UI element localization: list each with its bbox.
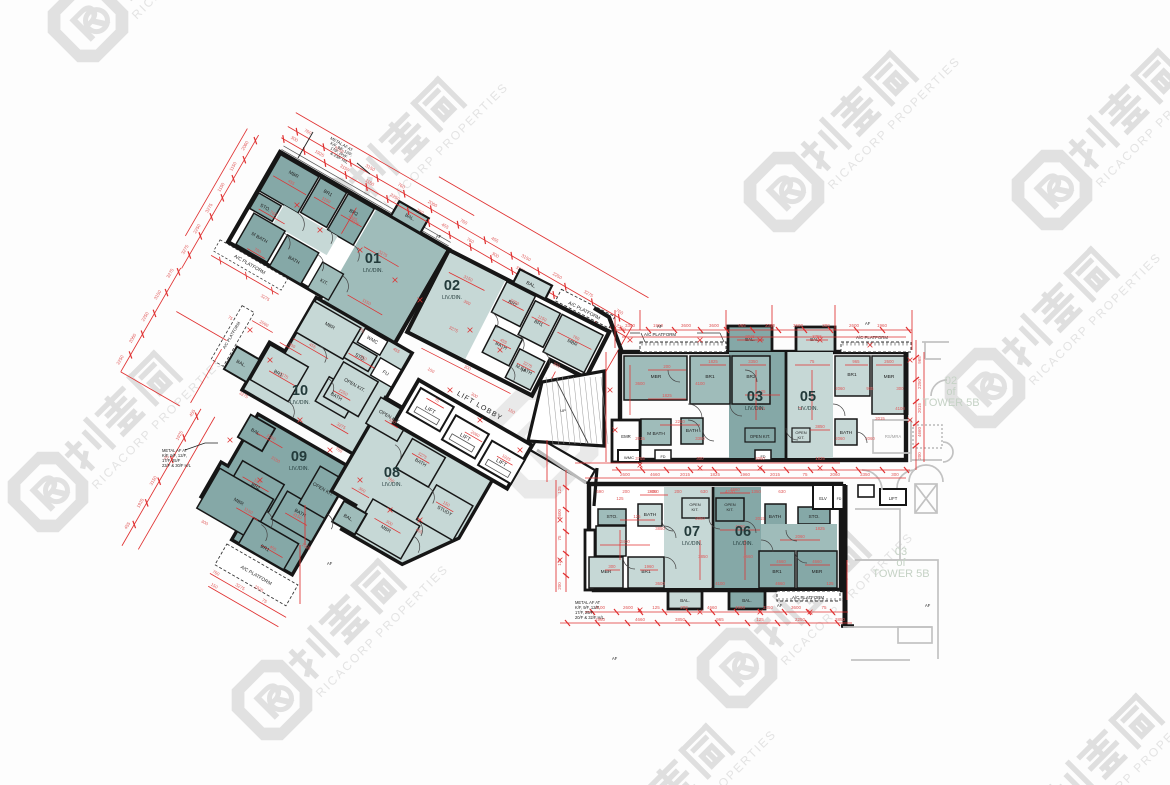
svg-text:BATH: BATH [686, 428, 699, 434]
svg-text:02: 02 [444, 278, 460, 294]
svg-text:200: 200 [557, 582, 562, 590]
svg-text:965: 965 [917, 356, 922, 364]
svg-text:1960: 1960 [877, 323, 888, 328]
svg-text:4660: 4660 [917, 426, 922, 437]
svg-text:2015: 2015 [770, 472, 781, 477]
svg-text:FD: FD [837, 497, 842, 501]
svg-text:3600: 3600 [791, 605, 802, 610]
svg-text:2600: 2600 [620, 472, 631, 477]
svg-text:3600: 3600 [635, 381, 645, 386]
svg-text:TOWER 5B: TOWER 5B [922, 397, 979, 409]
svg-text:75: 75 [557, 535, 562, 541]
svg-text:LIV./DIN.: LIV./DIN. [382, 482, 402, 488]
svg-text:07: 07 [684, 524, 700, 540]
svg-text:AF: AF [777, 603, 783, 608]
svg-text:965: 965 [716, 617, 724, 622]
svg-text:3600: 3600 [709, 323, 720, 328]
svg-text:AF: AF [925, 603, 931, 608]
svg-text:630: 630 [778, 489, 786, 494]
svg-text:2015: 2015 [635, 436, 645, 441]
svg-text:200: 200 [680, 605, 688, 610]
svg-text:2060: 2060 [695, 516, 705, 521]
svg-text:BAL.: BAL. [742, 598, 752, 603]
svg-text:200: 200 [917, 452, 922, 460]
svg-text:3350: 3350 [763, 605, 774, 610]
svg-text:630: 630 [700, 489, 708, 494]
svg-text:23/F & 30/F H/L: 23/F & 30/F H/L [162, 463, 192, 468]
svg-text:STO.: STO. [808, 514, 819, 520]
svg-text:A/C PLATFORM: A/C PLATFORM [644, 332, 676, 337]
svg-text:3850: 3850 [698, 554, 708, 559]
svg-text:75: 75 [821, 605, 827, 610]
svg-text:125: 125 [557, 486, 562, 494]
svg-text:3755: 3755 [635, 456, 645, 461]
svg-text:LIV./DIN.: LIV./DIN. [290, 400, 310, 406]
svg-text:1350: 1350 [751, 489, 761, 494]
svg-text:2015: 2015 [875, 416, 885, 421]
svg-text:KIT.: KIT. [798, 435, 805, 440]
svg-text:KIT.: KIT. [727, 507, 734, 512]
svg-text:BR1: BR1 [847, 372, 857, 378]
svg-text:965: 965 [866, 386, 874, 391]
svg-text:LIFT: LIFT [889, 496, 898, 501]
svg-text:125: 125 [756, 617, 764, 622]
svg-text:AF: AF [521, 368, 527, 373]
svg-text:2015: 2015 [917, 402, 922, 413]
svg-text:BATH: BATH [644, 512, 657, 518]
svg-text:LIV./DIN.: LIV./DIN. [733, 541, 753, 547]
svg-text:MBR: MBR [884, 374, 895, 380]
svg-text:4100: 4100 [695, 381, 705, 386]
svg-text:LIV./DIN.: LIV./DIN. [798, 406, 818, 412]
svg-text:RS/MRA: RS/MRA [885, 434, 901, 439]
svg-text:4230: 4230 [725, 489, 735, 494]
svg-text:3850: 3850 [835, 617, 846, 622]
svg-text:2060: 2060 [835, 386, 845, 391]
svg-text:2060: 2060 [755, 456, 765, 461]
svg-text:4100: 4100 [715, 581, 725, 586]
svg-text:BAL.: BAL. [680, 598, 690, 603]
svg-text:75: 75 [810, 359, 815, 364]
svg-text:75: 75 [802, 472, 808, 477]
svg-text:1825: 1825 [708, 359, 718, 364]
svg-text:3350: 3350 [765, 323, 776, 328]
svg-text:2600: 2600 [884, 359, 894, 364]
svg-text:LIV./DIN.: LIV./DIN. [363, 268, 383, 274]
svg-text:05: 05 [800, 389, 816, 405]
svg-text:EMR: EMR [621, 434, 631, 439]
svg-text:LIV./DIN.: LIV./DIN. [289, 466, 309, 472]
svg-text:2015: 2015 [745, 334, 755, 339]
svg-text:2060: 2060 [795, 534, 805, 539]
svg-text:4660: 4660 [707, 605, 718, 610]
svg-text:965: 965 [852, 359, 860, 364]
svg-text:2015: 2015 [680, 472, 691, 477]
svg-text:3600: 3600 [557, 508, 562, 519]
svg-text:1825: 1825 [815, 526, 825, 531]
svg-text:300: 300 [822, 323, 830, 328]
svg-text:3350: 3350 [748, 359, 758, 364]
svg-text:LIV./DIN.: LIV./DIN. [682, 541, 702, 547]
svg-text:4660: 4660 [812, 559, 822, 564]
svg-text:AF: AF [612, 656, 618, 661]
svg-text:965: 965 [738, 323, 746, 328]
svg-text:200: 200 [622, 489, 630, 494]
svg-text:06: 06 [735, 524, 751, 540]
svg-text:4660: 4660 [735, 605, 746, 610]
svg-text:4100: 4100 [895, 406, 905, 411]
svg-text:4660: 4660 [775, 581, 785, 586]
svg-text:2060: 2060 [830, 472, 841, 477]
svg-text:300: 300 [891, 472, 899, 477]
svg-text:STO.: STO. [606, 514, 617, 520]
svg-text:2250: 2250 [675, 419, 685, 424]
svg-text:TOWER 5B: TOWER 5B [872, 568, 929, 580]
svg-text:BR1: BR1 [705, 374, 715, 380]
svg-text:3350: 3350 [695, 436, 705, 441]
svg-text:2600: 2600 [849, 323, 860, 328]
svg-text:A/C PLATFORM: A/C PLATFORM [792, 595, 824, 600]
svg-text:1960: 1960 [740, 472, 751, 477]
svg-text:690: 690 [596, 489, 604, 494]
svg-text:03: 03 [747, 389, 763, 405]
svg-text:01: 01 [365, 251, 381, 267]
svg-text:2250: 2250 [917, 378, 922, 389]
svg-text:125: 125 [652, 605, 660, 610]
svg-text:1825: 1825 [815, 456, 825, 461]
svg-text:1960: 1960 [644, 564, 654, 569]
svg-text:4660: 4660 [776, 559, 786, 564]
svg-text:4660: 4660 [650, 472, 661, 477]
svg-text:FD: FD [660, 455, 665, 459]
svg-text:3850: 3850 [675, 617, 686, 622]
svg-text:2250: 2250 [795, 617, 806, 622]
svg-text:A/C PLATFORM: A/C PLATFORM [856, 335, 888, 340]
svg-text:08: 08 [384, 465, 400, 481]
svg-text:ELV: ELV [819, 496, 827, 501]
svg-text:3400: 3400 [620, 539, 630, 544]
svg-text:3755: 3755 [812, 334, 822, 339]
svg-text:3600: 3600 [793, 323, 804, 328]
svg-text:3350: 3350 [625, 323, 636, 328]
svg-text:2600: 2600 [623, 605, 634, 610]
svg-text:BATH: BATH [769, 514, 782, 520]
svg-text:4660: 4660 [635, 617, 646, 622]
svg-text:WMC: WMC [624, 455, 634, 460]
svg-text:3350: 3350 [860, 472, 871, 477]
svg-text:UP: UP [560, 408, 566, 413]
svg-text:09: 09 [291, 449, 307, 465]
svg-text:300: 300 [896, 386, 904, 391]
svg-text:3600: 3600 [681, 323, 692, 328]
svg-text:KIT.: KIT. [692, 507, 699, 512]
svg-text:3600: 3600 [655, 581, 665, 586]
svg-text:2060: 2060 [835, 436, 845, 441]
svg-text:MBR: MBR [651, 374, 662, 380]
svg-text:2015: 2015 [755, 516, 765, 521]
svg-text:4660: 4660 [743, 554, 753, 559]
svg-text:3850: 3850 [815, 424, 825, 429]
svg-text:AF: AF [865, 321, 871, 326]
svg-text:AF: AF [327, 561, 333, 566]
svg-text:MBR: MBR [812, 569, 823, 575]
svg-text:1900: 1900 [647, 489, 657, 494]
svg-text:125: 125 [826, 581, 834, 586]
svg-text:125: 125 [633, 514, 641, 519]
svg-text:1825: 1825 [710, 472, 721, 477]
svg-text:20/F & 32/F H/L: 20/F & 32/F H/L [575, 615, 605, 620]
svg-text:125: 125 [616, 496, 624, 501]
svg-text:AF: AF [436, 234, 442, 239]
svg-text:200: 200 [674, 489, 682, 494]
svg-text:LIV./DIN.: LIV./DIN. [442, 295, 462, 301]
svg-text:AF: AF [657, 324, 663, 329]
svg-text:BR1: BR1 [772, 569, 782, 575]
svg-text:10: 10 [292, 383, 308, 399]
svg-text:OPEN KIT.: OPEN KIT. [750, 434, 770, 439]
svg-text:1825: 1825 [662, 393, 672, 398]
svg-text:200: 200 [663, 364, 671, 369]
svg-text:M BATH: M BATH [647, 431, 665, 437]
svg-text:LIV./DIN.: LIV./DIN. [745, 406, 765, 412]
svg-text:300: 300 [696, 456, 704, 461]
svg-text:300: 300 [608, 564, 616, 569]
